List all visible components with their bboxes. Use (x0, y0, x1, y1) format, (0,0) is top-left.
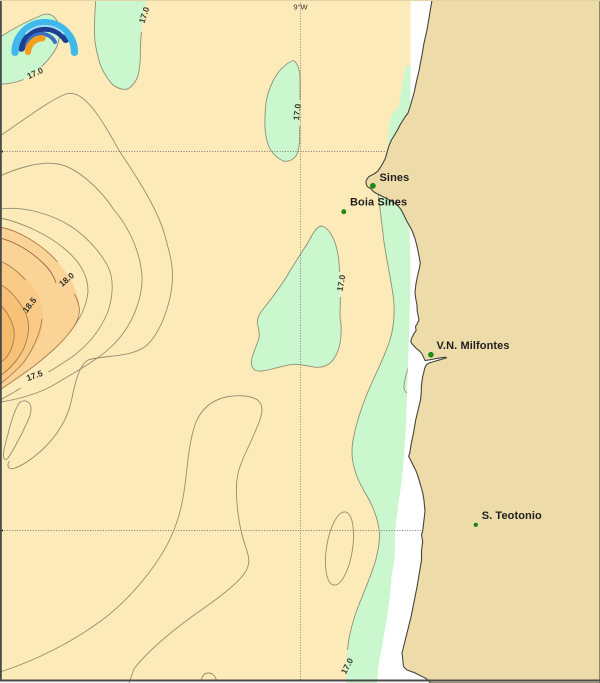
svg-text:17.0: 17.0 (291, 103, 303, 121)
svg-text:V.N. Milfontes: V.N. Milfontes (437, 340, 510, 352)
svg-text:Boia Sines: Boia Sines (350, 197, 407, 209)
svg-text:Sines: Sines (380, 172, 410, 184)
svg-text:S. Teotonio: S. Teotonio (482, 510, 542, 522)
svg-text:9°W: 9°W (293, 3, 308, 12)
